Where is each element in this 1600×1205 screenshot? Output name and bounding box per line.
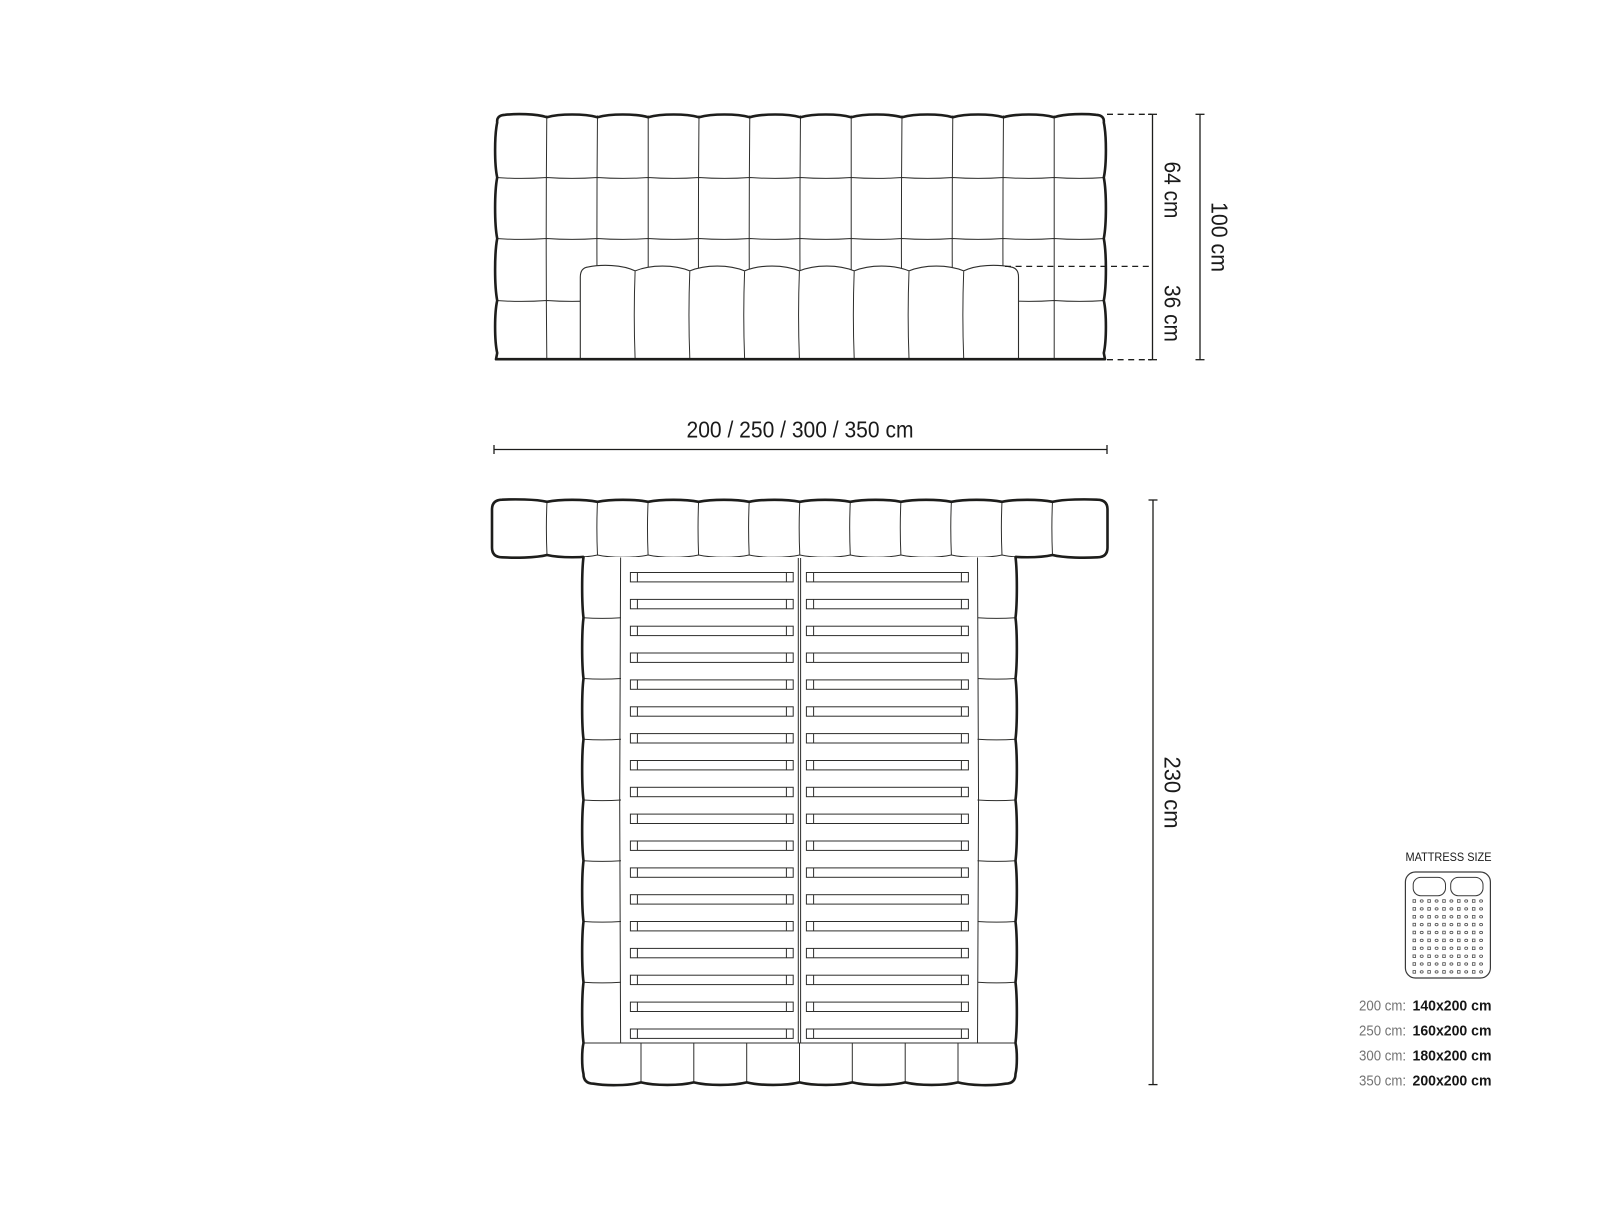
svg-text:230 cm: 230 cm: [1160, 757, 1186, 829]
svg-text:64 cm: 64 cm: [1160, 162, 1186, 219]
svg-text:250 cm:: 250 cm:: [1359, 1024, 1406, 1040]
svg-text:140x200 cm: 140x200 cm: [1413, 999, 1492, 1015]
svg-text:36 cm: 36 cm: [1160, 285, 1186, 342]
svg-text:200 / 250 / 300 / 350 cm: 200 / 250 / 300 / 350 cm: [687, 417, 914, 443]
svg-text:200x200 cm: 200x200 cm: [1413, 1074, 1492, 1090]
svg-text:100 cm: 100 cm: [1207, 202, 1233, 272]
svg-text:MATTRESS SIZE: MATTRESS SIZE: [1406, 850, 1492, 864]
svg-text:300 cm:: 300 cm:: [1359, 1049, 1406, 1065]
svg-text:160x200 cm: 160x200 cm: [1413, 1024, 1492, 1040]
svg-text:200 cm:: 200 cm:: [1359, 999, 1406, 1015]
svg-text:180x200 cm: 180x200 cm: [1413, 1049, 1492, 1065]
svg-text:350 cm:: 350 cm:: [1359, 1074, 1406, 1090]
